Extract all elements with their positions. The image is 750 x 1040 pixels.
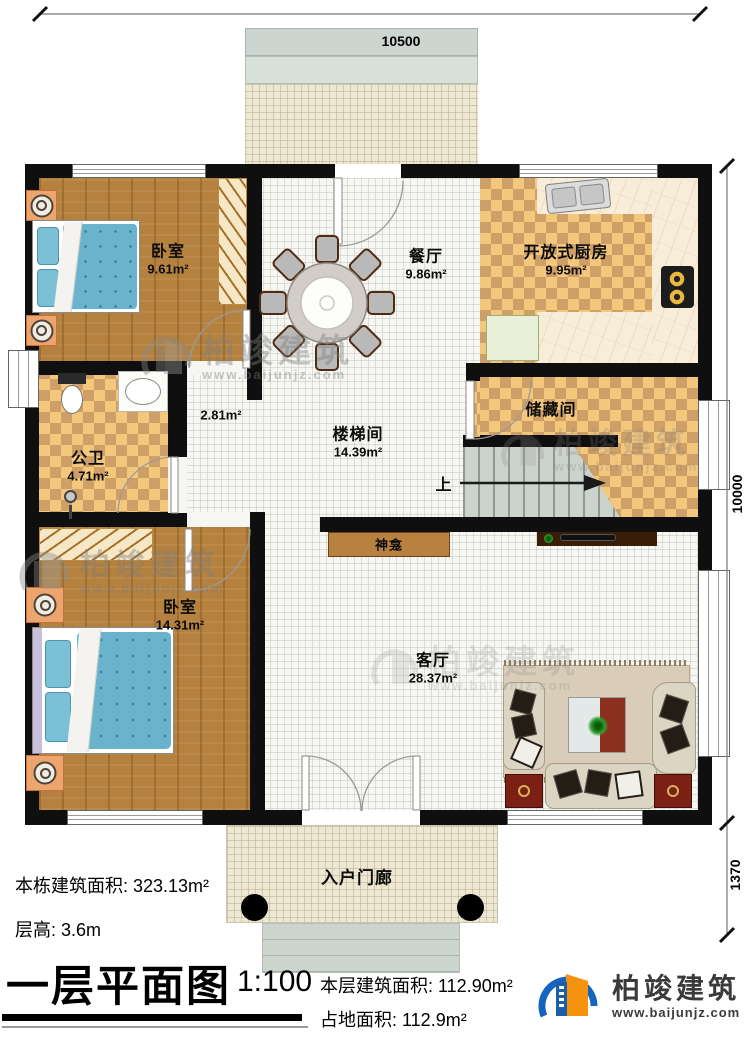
toilet-bowl [61, 385, 83, 414]
back-porch-step-upper [245, 28, 478, 56]
sofa-left [503, 682, 545, 770]
label-stairs-up: 上 [435, 471, 452, 495]
wall-stairs-top [463, 435, 618, 447]
brand-url: www.baijunjz.com [612, 1005, 740, 1020]
bed2-pillow-2 [45, 692, 71, 742]
porch-column-right [457, 894, 484, 921]
sofa-chaise-right [652, 682, 696, 774]
window-living-bottom [507, 810, 643, 825]
tv [560, 534, 616, 541]
door-opening-entry [302, 810, 420, 825]
sink-basin-left [551, 186, 577, 208]
bed-bedroom1 [32, 220, 140, 313]
lamp-icon [34, 594, 57, 617]
end-table-ornament [667, 785, 679, 797]
dimension-top: 10500 [382, 33, 421, 49]
wall-bathroom-right [168, 368, 187, 457]
label-storage: 储藏间 [525, 396, 576, 420]
floor-drain [64, 490, 77, 503]
tv-plant [544, 534, 553, 543]
refrigerator [486, 315, 539, 361]
nightstand-bedroom2-bottom [26, 755, 64, 791]
window-bedroom2-bottom [67, 810, 203, 825]
toilet [58, 373, 86, 384]
window-bathroom-left [8, 350, 39, 408]
label-kitchen: 开放式厨房 9.95m² [523, 239, 608, 278]
door-opening-storage [466, 381, 480, 437]
nightstand-bedroom1-bottom [26, 315, 57, 346]
label-hallway-area: 2.81m² [200, 408, 241, 423]
label-bedroom2: 卧室 14.31m² [156, 594, 204, 633]
sofa-pillow [614, 770, 643, 799]
window-storage-right [698, 400, 730, 490]
window-living-right [698, 570, 730, 757]
footprint-area: 占地面积: 112.9m² [320, 1006, 467, 1032]
floor-area: 本层建筑面积: 112.90m² [320, 972, 513, 998]
title-underline-thick [2, 1014, 302, 1021]
label-living: 客厅 28.37m² [409, 647, 457, 686]
bath-sink-basin [125, 378, 161, 405]
wall-kitchen-storage [466, 363, 712, 377]
stove [661, 266, 694, 308]
wardrobe-bedroom1 [218, 178, 247, 305]
wardrobe-bedroom2 [39, 528, 153, 561]
floor-plan: 10500 10000 1370 卧室 9.61m² 餐厅 9.86m² 开放式… [0, 0, 750, 1040]
end-table-right [654, 774, 692, 808]
drain-stem [69, 505, 72, 519]
end-table-left [505, 774, 543, 808]
coffee-table [568, 697, 626, 753]
burner-bottom [669, 289, 685, 305]
page-title: 一层平面图 [6, 952, 231, 1014]
bed2-pillow-1 [45, 640, 71, 688]
dimension-right-porch: 1370 [727, 859, 743, 890]
dimension-right-main: 10000 [729, 475, 745, 514]
brand-name: 柏竣建筑 [612, 974, 740, 1005]
wall-bedroom1-right [247, 164, 262, 400]
brand-logo-icon [536, 964, 604, 1030]
window-kitchen-top [519, 164, 658, 178]
door-opening-bathroom [168, 457, 187, 513]
brand-logo: 柏竣建筑 www.baijunjz.com [536, 962, 746, 1032]
sofa-pillow [659, 694, 689, 724]
sofa-pillow [553, 769, 583, 799]
wall-below-stairs [320, 517, 712, 532]
floor-height: 层高: 3.6m [15, 916, 101, 942]
nightstand-bedroom2-top [26, 587, 64, 623]
sofa-pillow [511, 713, 537, 739]
door-opening-dining-porch [335, 164, 401, 178]
burner-top [669, 271, 685, 287]
label-stairwell: 楼梯间 14.39m² [332, 421, 383, 460]
sofa-bottom [545, 763, 657, 809]
end-table-ornament [518, 785, 530, 797]
back-porch-step-lower [245, 56, 478, 84]
lamp-icon [34, 762, 57, 785]
porch-column-left [241, 894, 268, 921]
lamp-icon [30, 194, 53, 217]
sofa-pillow [660, 724, 691, 755]
door-opening-bedroom1 [187, 361, 247, 375]
title-underline-thin [2, 1026, 308, 1028]
label-dining: 餐厅 9.86m² [405, 243, 446, 282]
door-opening-bedroom2 [187, 512, 250, 527]
bed-bedroom2 [32, 627, 174, 754]
plan-scale: 1:100 [237, 965, 312, 999]
rug-fringe-top [504, 660, 689, 666]
table-plant [588, 716, 608, 736]
sink-basin-right [579, 183, 605, 205]
label-shrine: 神龛 [375, 535, 403, 554]
building-total-area: 本栋建筑面积: 323.13m² [15, 872, 209, 898]
window-bedroom1-top [72, 164, 206, 178]
bed2-headboard [33, 628, 42, 753]
sofa-pillow [584, 769, 612, 797]
sofa-pillow [510, 689, 537, 716]
label-bedroom1: 卧室 9.61m² [147, 238, 188, 277]
lamp-icon [30, 319, 53, 342]
bed1-pillow-1 [37, 227, 59, 265]
kitchen-counter-lower [537, 312, 652, 363]
label-bathroom: 公卫 4.71m² [67, 445, 108, 484]
sofa-pillow [510, 736, 543, 769]
label-entry-porch: 入户门廊 [321, 864, 393, 889]
nightstand-bedroom1-top [26, 190, 57, 221]
back-porch-floor [245, 84, 478, 164]
wall-bedroom2-right [250, 512, 265, 810]
